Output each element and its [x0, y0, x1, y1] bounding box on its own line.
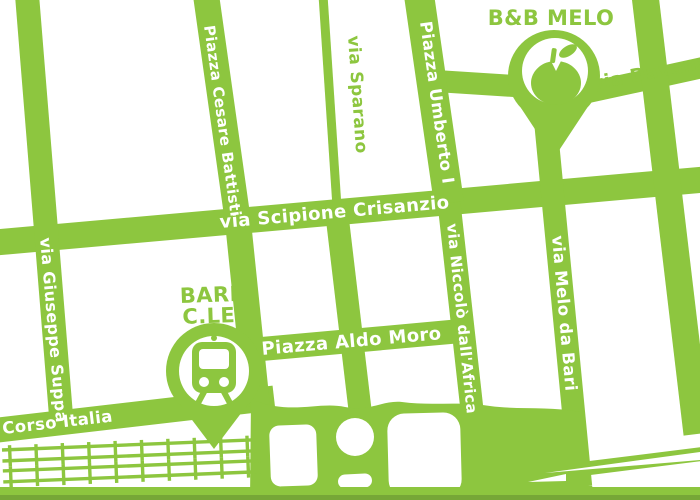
station-area-cutout-1 — [269, 424, 318, 487]
bnb-melo-label: B&B MELO — [488, 6, 615, 30]
station-area-cutout-3 — [338, 473, 373, 489]
street-via-davanzale-west — [436, 81, 514, 86]
map-bottom-dark-stripe — [0, 495, 700, 500]
station-area-cutout-2 — [336, 418, 374, 456]
station-area-cutout-4 — [387, 412, 462, 498]
bari-street-map: Piazza Cesare Battisti via Sparano Piazz… — [0, 0, 700, 500]
